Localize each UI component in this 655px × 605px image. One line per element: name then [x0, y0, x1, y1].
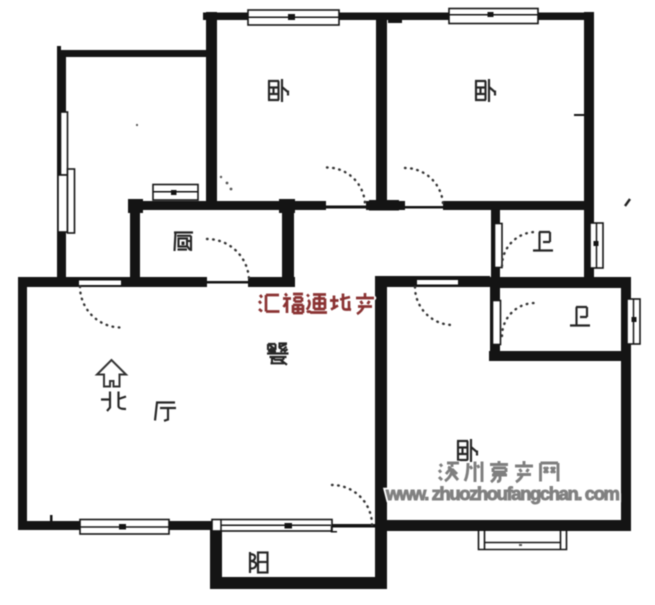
svg-text:www. zhuozhoufangchan. com: www. zhuozhoufangchan. com [385, 483, 620, 504]
